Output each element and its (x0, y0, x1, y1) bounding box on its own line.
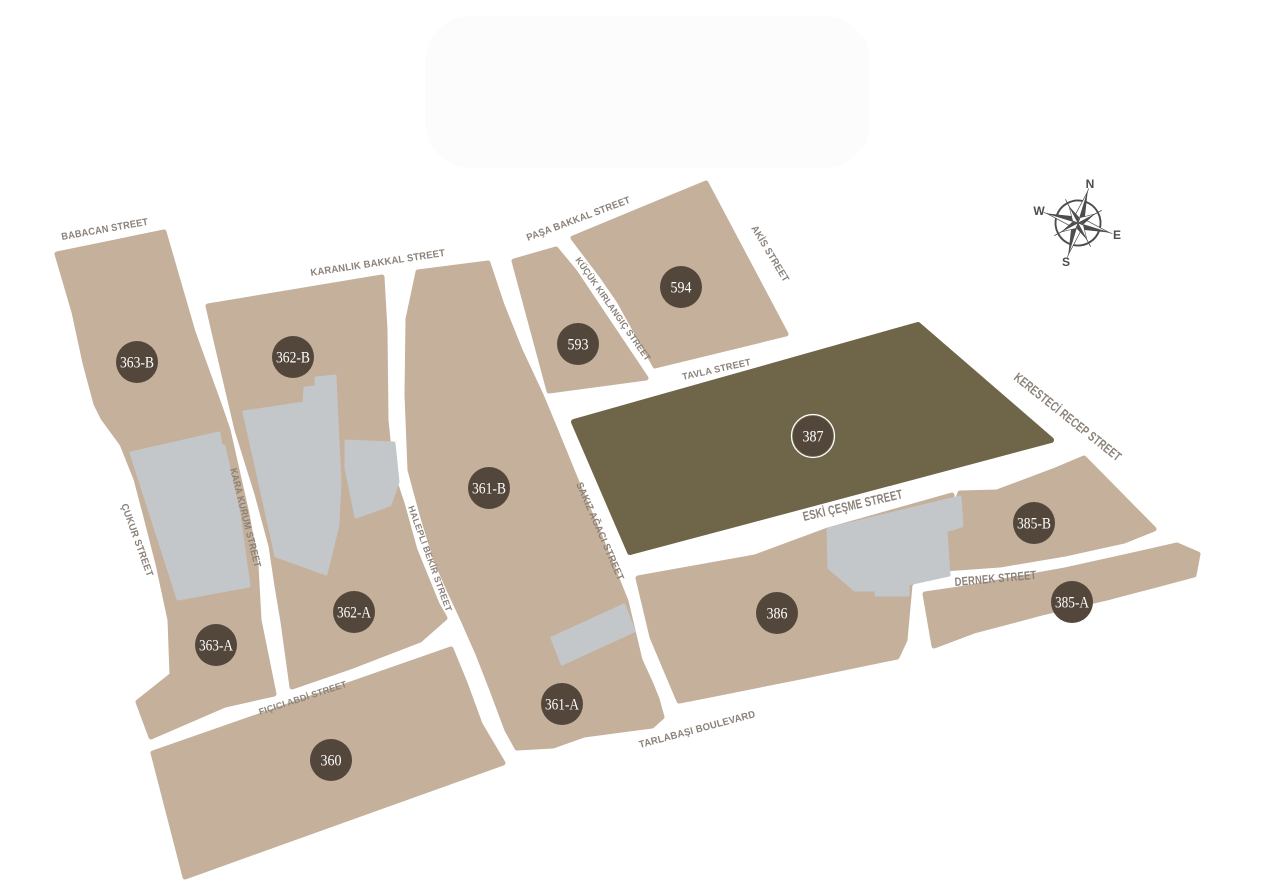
svg-text:W: W (1033, 204, 1045, 218)
svg-text:593: 593 (568, 337, 589, 354)
svg-text:N: N (1086, 177, 1095, 191)
svg-text:385-A: 385-A (1055, 595, 1089, 612)
svg-text:360: 360 (321, 753, 342, 770)
svg-text:E: E (1113, 228, 1121, 242)
svg-text:594: 594 (671, 280, 692, 297)
svg-text:385-B: 385-B (1017, 516, 1051, 533)
svg-text:363-A: 363-A (199, 638, 233, 655)
svg-text:386: 386 (767, 606, 788, 623)
svg-text:387: 387 (803, 429, 824, 446)
svg-text:361-B: 361-B (472, 481, 506, 498)
svg-text:362-B: 362-B (276, 350, 310, 367)
svg-text:361-A: 361-A (545, 697, 579, 714)
svg-text:363-B: 363-B (120, 355, 154, 372)
svg-text:362-A: 362-A (337, 605, 371, 622)
svg-text:S: S (1062, 255, 1070, 269)
